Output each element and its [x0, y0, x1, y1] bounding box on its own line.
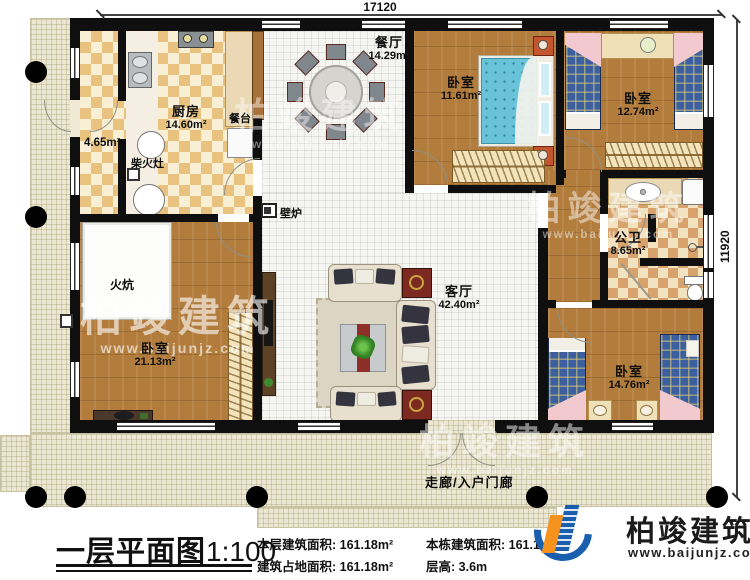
title-underline-thin [56, 570, 252, 572]
bed-sheet-edge [566, 112, 600, 129]
room-label-living: 客厅 42.40m² [439, 285, 480, 311]
brand-url: www.baijunjz.com [628, 545, 750, 560]
wardrobe [452, 150, 545, 183]
wall [253, 222, 262, 424]
fridge [227, 128, 253, 158]
wall [556, 18, 564, 185]
nightstand-lamp [538, 150, 548, 160]
window [70, 362, 80, 397]
sofa-cushion [333, 268, 353, 284]
wall [648, 214, 656, 242]
room-label-bedroom4: 卧室 14.76m² [609, 365, 650, 391]
window [298, 422, 340, 431]
wall [600, 170, 608, 214]
bath-sink-drain [640, 189, 646, 195]
room-label-bedroom3: 卧室 21.13m² [135, 342, 176, 368]
kitchen-sink-basin [132, 72, 148, 84]
room-label-kitchen: 厨房 14.60m² [166, 105, 207, 131]
wood-stove-pot [133, 184, 165, 216]
sofa-cushion [355, 269, 374, 284]
porch-left-step [0, 435, 30, 492]
brand-name: 柏竣建筑 [626, 508, 750, 550]
label-fireplace: 壁炉 [280, 205, 302, 221]
column [706, 486, 728, 508]
wall [249, 214, 253, 222]
window [703, 272, 714, 298]
window [262, 20, 300, 29]
title-underline [56, 564, 252, 567]
porch-bottom-strip [30, 433, 712, 507]
wardrobe [605, 142, 703, 168]
flue-box [60, 314, 73, 328]
entry-step [257, 507, 557, 528]
bed-pillow [686, 340, 699, 357]
kang-bed [82, 222, 172, 320]
stove-burner [183, 34, 192, 43]
sofa-cushion [401, 365, 430, 385]
sofa-cushion [336, 391, 356, 406]
wall [405, 185, 413, 193]
window [70, 243, 80, 290]
wall [600, 252, 608, 302]
window [117, 422, 215, 431]
window [703, 65, 714, 117]
sofa-cushion [375, 268, 395, 285]
column [25, 206, 47, 228]
wall [538, 228, 548, 424]
stat-footprint-area: 建筑占地面积: 161.18m² [257, 556, 393, 575]
window [448, 20, 522, 29]
window [362, 20, 405, 29]
wall [592, 300, 703, 308]
sofa-cushion [401, 345, 429, 364]
dining-chair [326, 44, 346, 60]
column [25, 486, 47, 508]
wall [118, 31, 126, 101]
label-storage-area: 4.65m² [84, 137, 120, 149]
nightstand-lamp [538, 40, 548, 50]
end-table-medallion [409, 275, 424, 290]
sofa-cushion [401, 305, 430, 325]
dimension-line-top [100, 14, 722, 16]
end-table-medallion [409, 397, 424, 412]
dining-chair [326, 124, 346, 140]
desk-item [140, 413, 148, 419]
sofa-cushion [401, 325, 429, 344]
column [526, 486, 548, 508]
sofa-cushion [357, 392, 376, 406]
room-label-bedroom2: 卧室 12.74m² [618, 92, 659, 118]
window [612, 422, 653, 431]
storage-door-opening [70, 100, 80, 137]
dining-chair [287, 82, 303, 102]
room-label-bedroom1: 卧室 11.61m² [441, 76, 481, 102]
window [70, 167, 80, 195]
column [25, 61, 47, 83]
window [70, 48, 80, 78]
wall [556, 170, 566, 178]
floor-plan: 餐厅 14.29m² 卧室 11.61m² 卧室 12.74m² 厨房 14.6… [0, 0, 750, 580]
sofa-cushion [377, 391, 396, 407]
tv-plant [264, 378, 273, 387]
wall [640, 258, 703, 266]
label-porch: 走廊/入户门廊 [425, 472, 514, 491]
dining-chair [369, 82, 385, 102]
stove-burner [199, 34, 208, 43]
dining-table-center [325, 81, 347, 103]
bed-pillow [539, 101, 551, 136]
wall [72, 214, 218, 222]
wall [118, 139, 126, 214]
nightstand-detail [640, 405, 653, 416]
label-wood-stove: 柴火灶 [131, 155, 164, 171]
wardrobe [228, 312, 253, 422]
dimension-line-right [736, 20, 738, 498]
tv [264, 300, 273, 346]
table-lamp [640, 37, 656, 53]
room-label-dining: 餐厅 14.29m² [369, 36, 410, 62]
stat-floor-area: 本层建筑面积: 161.18m² [257, 534, 393, 553]
wall [600, 170, 703, 178]
stat-building-area: 本栋建筑面积: 161.1 [426, 534, 540, 553]
wall [253, 118, 262, 160]
column [246, 486, 268, 508]
nightstand-strip [601, 33, 674, 59]
entrance-opening [428, 420, 495, 433]
wall [448, 185, 556, 193]
bed-pillow [539, 62, 551, 97]
column [64, 486, 86, 508]
kitchen-sink-basin [132, 56, 148, 68]
label-kang: 火炕 [110, 276, 134, 293]
nightstand-detail [593, 405, 607, 416]
fireplace-inner [264, 207, 271, 214]
window [703, 215, 714, 268]
toilet-bowl [687, 284, 703, 301]
dimension-right: 11920 [718, 222, 734, 272]
room-label-bathroom: 公卫 8.65m² [611, 231, 646, 257]
towel-ring [688, 243, 697, 252]
stat-floor-height: 层高: 3.6m [426, 556, 487, 575]
label-counter: 餐台 [229, 110, 251, 126]
window [610, 20, 668, 29]
dimension-top: 17120 [350, 0, 410, 14]
tall-cabinet [252, 31, 264, 120]
desk-item [114, 411, 134, 420]
